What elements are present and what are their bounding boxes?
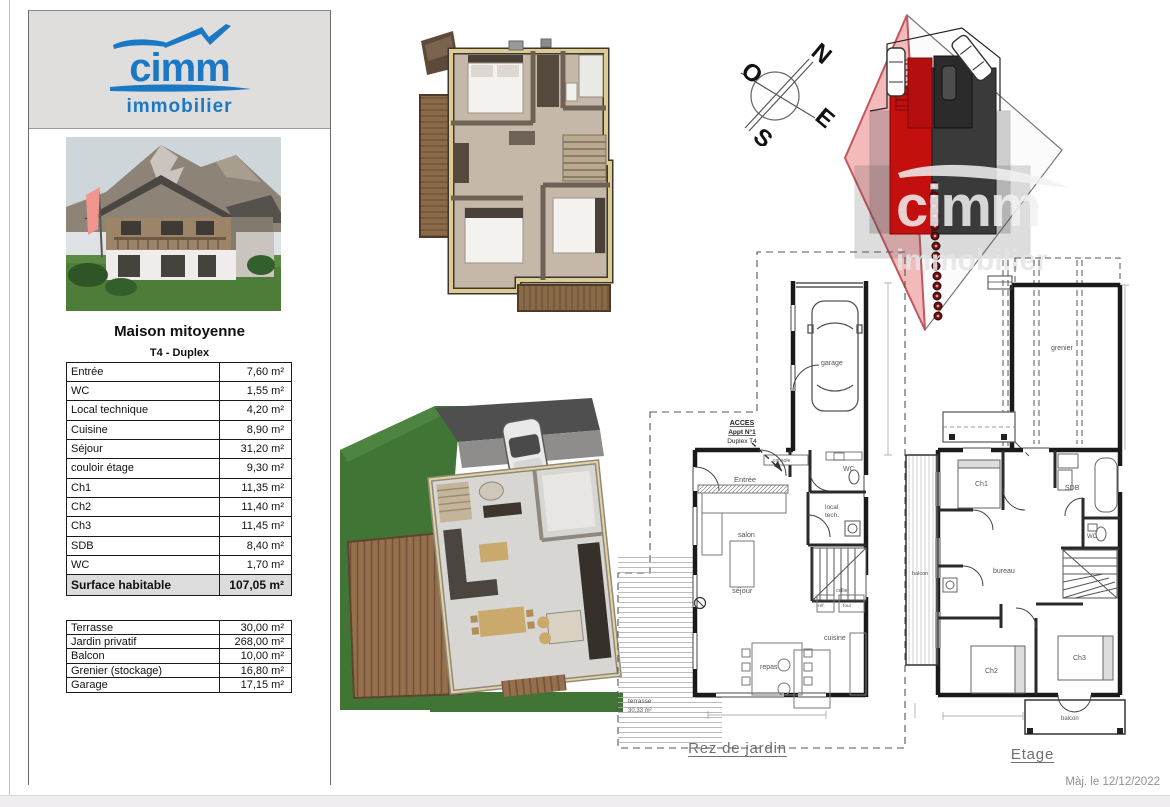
room-label: WC: [67, 382, 220, 401]
svg-text:tech.: tech.: [825, 512, 839, 519]
room-label: Entrée: [67, 363, 220, 382]
terrace-hatch: [618, 555, 722, 747]
access-note: ACCES Appt N°1 Duplex T4: [727, 420, 757, 445]
brand-logo: cimm immobilier: [29, 11, 330, 129]
svg-text:Appt N°1: Appt N°1: [728, 428, 756, 436]
room-label: couloir étage: [67, 459, 220, 478]
table-row: Ch211,40 m²: [66, 497, 292, 518]
annex-label: Grenier (stockage): [67, 664, 220, 678]
brand-underline-icon: [105, 83, 255, 95]
room-label: SDB: [67, 537, 220, 556]
room-area: 31,20 m²: [220, 440, 291, 459]
room-label-wc: WC: [843, 466, 855, 473]
annex-areas-table: Terrasse30,00 m² Jardin privatif268,00 m…: [66, 621, 292, 693]
room-label: Ch1: [67, 479, 220, 498]
room-label-sejour: séjour: [732, 586, 753, 595]
room-label-ref: réf.: [818, 603, 825, 609]
caption-etage: Etage: [975, 746, 1090, 763]
annex-label: Terrasse: [67, 621, 220, 635]
table-row: WC1,70 m²: [66, 555, 292, 576]
room-area: 4,20 m²: [220, 401, 291, 420]
annex-area: 268,00 m²: [220, 635, 291, 649]
window-bottom-strip: [0, 795, 1170, 807]
brand-name: cimm: [129, 53, 230, 83]
sink: [566, 83, 577, 101]
room-label-balcon-bottom: balcon: [1061, 716, 1079, 722]
room-label-garage: garage: [821, 360, 843, 367]
table-row: Entrée7,60 m²: [66, 362, 292, 383]
room-area: 1,70 m²: [220, 556, 291, 575]
table-row: Séjour31,20 m²: [66, 439, 292, 460]
table-row: Terrasse30,00 m²: [66, 620, 292, 636]
room-area: 11,40 m²: [220, 498, 291, 517]
document-page: cimm immobilier: [0, 0, 1170, 807]
room-label: Ch2: [67, 498, 220, 517]
balcony-left: [906, 455, 938, 665]
brand-tagline: immobilier: [126, 97, 232, 117]
svg-text:ACCES: ACCES: [730, 420, 755, 427]
floorplan-etage: grenier Ch1 SDB WC bureau balcon Ch2 Ch3…: [903, 248, 1129, 750]
house-photo: [66, 137, 281, 311]
room-label-salon: salon: [738, 532, 755, 539]
annex-area: 16,80 m²: [220, 664, 291, 678]
room-area: 8,40 m²: [220, 537, 291, 556]
room-area: 9,30 m²: [220, 459, 291, 478]
table-row: Ch111,35 m²: [66, 478, 292, 499]
room-label-sdb: SDB: [1065, 485, 1080, 492]
svg-text:Duplex T4: Duplex T4: [727, 438, 757, 445]
building-interior: [430, 462, 620, 702]
annex-area: 10,00 m²: [220, 649, 291, 663]
total-label: Surface habitable: [67, 575, 220, 595]
room-label-grenier: grenier: [1051, 345, 1073, 352]
car-icon: [808, 301, 862, 411]
page-edge-line: [9, 0, 10, 795]
room-label-bureau: bureau: [993, 568, 1015, 575]
room-area: 11,45 m²: [220, 517, 291, 536]
caption-rez-de-jardin: Rez de jardin: [650, 740, 825, 757]
room-label: Local technique: [67, 401, 220, 420]
compass-south: S: [748, 123, 778, 146]
svg-text:cimm: cimm: [896, 174, 1040, 239]
table-row: SDB8,40 m²: [66, 536, 292, 557]
annex-area: 30,00 m²: [220, 621, 291, 635]
room-area: 11,35 m²: [220, 479, 291, 498]
annex-label: Balcon: [67, 649, 220, 663]
listing-title: Maison mitoyenne: [29, 323, 330, 340]
table-row: Grenier (stockage)16,80 m²: [66, 663, 292, 679]
room-label-local-tech: local: [825, 504, 839, 511]
dining-table: [478, 606, 526, 637]
room-area: 8,90 m²: [220, 421, 291, 440]
room-label-ch3: Ch3: [1073, 655, 1086, 662]
room-label-cuisine: cuisine: [824, 635, 846, 642]
room-label-balcon-left: balcon: [912, 571, 928, 577]
table-row: Balcon10,00 m²: [66, 648, 292, 664]
room-label: Ch3: [67, 517, 220, 536]
render-3d-garden-level: [340, 392, 623, 712]
room-label: Cuisine: [67, 421, 220, 440]
compass-rose: N O E S: [735, 28, 845, 146]
listing-info-panel: cimm immobilier: [28, 10, 331, 785]
table-row: Local technique4,20 m²: [66, 400, 292, 421]
room-label: Séjour: [67, 440, 220, 459]
table-row: WC1,55 m²: [66, 381, 292, 402]
room-label-terrasse: terrasse: [628, 698, 652, 705]
room-label-cellier: cellier: [836, 588, 849, 594]
pink-flag: [86, 187, 100, 235]
last-updated-date: Màj. le 12/12/2022: [930, 776, 1160, 788]
table-row: Jardin privatif268,00 m²: [66, 634, 292, 650]
room-label-ch1: Ch1: [975, 481, 988, 488]
floorplan-rez-de-jardin: garage Entrée console WC local tech. sal…: [612, 245, 908, 761]
table-row: Cuisine8,90 m²: [66, 420, 292, 441]
room-label-console: console: [773, 458, 790, 464]
room-area: 1,55 m²: [220, 382, 291, 401]
shower: [579, 55, 603, 97]
car-icon: [887, 48, 905, 96]
annex-label: Garage: [67, 678, 220, 692]
table-row: Ch311,45 m²: [66, 516, 292, 537]
room-label-wc: WC: [1087, 534, 1098, 540]
compass-west: O: [736, 57, 768, 90]
terrasse-area: 30,33 m²: [628, 708, 652, 714]
stairs: [1063, 550, 1117, 598]
room-label-repas: repas: [760, 664, 778, 671]
annex-label: Jardin privatif: [67, 635, 220, 649]
listing-subtitle: T4 - Duplex: [29, 347, 330, 359]
annex-area: 17,15 m²: [220, 678, 291, 692]
grenier-walls: [1012, 285, 1120, 450]
table-row: Garage17,15 m²: [66, 677, 292, 693]
room-label: WC: [67, 556, 220, 575]
table-row: couloir étage9,30 m²: [66, 458, 292, 479]
room-area: 7,60 m²: [220, 363, 291, 382]
wardrobe: [537, 55, 559, 107]
total-area: 107,05 m²: [220, 575, 291, 595]
room-areas-table: Entrée7,60 m² WC1,55 m² Local technique4…: [66, 363, 292, 596]
room-label-entree: Entrée: [734, 475, 756, 484]
room-label-four: four: [843, 603, 852, 609]
table-row-total: Surface habitable107,05 m²: [66, 574, 292, 596]
room-label-ch2: Ch2: [985, 668, 998, 675]
